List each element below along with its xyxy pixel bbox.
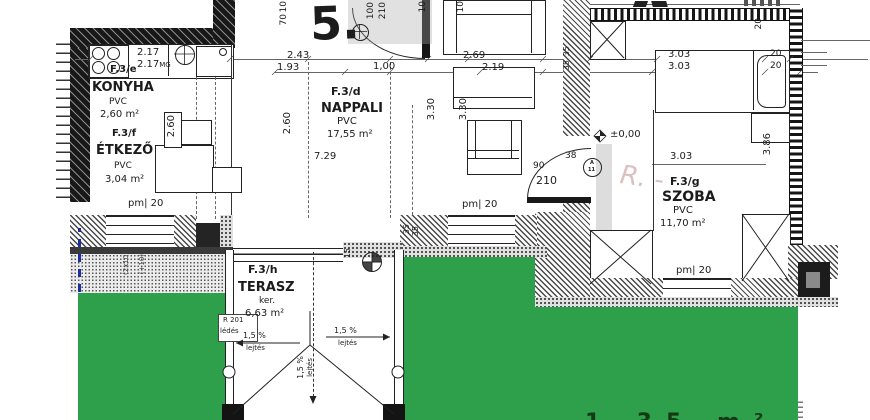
dim-20b: 20	[770, 50, 781, 59]
dim-35d: 35	[412, 226, 420, 236]
dim-35b: 35	[563, 60, 571, 70]
room-area-konyha: 2,60 m²	[100, 110, 139, 120]
dim-35a: 35	[563, 46, 571, 56]
dim-330b: 3.30	[459, 98, 469, 120]
slope-word-left: lejtés	[246, 345, 265, 352]
room-floor-szoba: PVC	[673, 206, 693, 216]
room-area-etkezo: 3,04 m²	[105, 175, 144, 185]
dim-217: 2.17	[137, 48, 159, 58]
dim-door-100: 100	[367, 2, 376, 19]
dim-243: 2.43	[287, 51, 309, 61]
dim-219: 2.19	[482, 63, 504, 73]
dim-10a: 10	[280, 1, 289, 12]
slope-word-center: lejtés	[307, 358, 314, 377]
dim-330a: 3.30	[427, 98, 437, 120]
plan-number: 5.	[309, 0, 360, 47]
dim-mg-suffix: MG	[159, 61, 170, 69]
room-area-terasz: 6,63 m²	[245, 309, 284, 319]
note-2x10: (2x10)	[123, 252, 130, 275]
floor-plan-canvas: A 11	[0, 0, 870, 420]
bottom-clipped-text: 1,35 m²	[585, 412, 778, 420]
room-area-nappali: 17,55 m²	[327, 130, 373, 140]
room-name-szoba: SZOBA	[662, 190, 716, 204]
note-r201b: lédés	[220, 328, 239, 335]
dim-193: 1.93	[277, 63, 299, 73]
room-name-konyha: KONYHA	[92, 81, 154, 94]
level-mark: ±0,00	[610, 130, 641, 140]
parapet-note-nappali: pm| 20	[462, 200, 497, 210]
room-name-terasz: TERASZ	[238, 281, 295, 294]
slope-word-right: lejtés	[338, 340, 357, 347]
dim-260a: 2.60	[167, 115, 177, 137]
dim-260b: 2.60	[283, 112, 293, 134]
door-dim-38: 38	[565, 152, 576, 161]
dim-door-210: 210	[379, 2, 388, 19]
dim-729: 7.29	[314, 152, 336, 162]
room-floor-etkezo: PVC	[114, 162, 132, 171]
parapet-note-etkezo: pm| 20	[128, 199, 163, 209]
room-id-etkezo: F.3/f	[112, 129, 136, 139]
dim-15: 15	[344, 248, 352, 258]
dim-269: 2.69	[463, 51, 485, 61]
watermark-initial: R. -	[618, 162, 665, 194]
room-id-terasz: F.3/h	[248, 264, 278, 275]
room-id-konyha: F.3/e	[110, 65, 137, 75]
door-dim-210: 210	[536, 175, 557, 186]
slope-pct-center: 1,5 %	[297, 356, 305, 379]
dim-70: 70	[280, 14, 289, 25]
dim-303a: 3.03	[668, 50, 690, 60]
note-r201: R 201	[223, 317, 243, 324]
slope-pct-left: 1,5 %	[243, 332, 266, 340]
dim-303b: 3.03	[668, 62, 690, 72]
dim-217b: 2.17MG	[137, 60, 171, 70]
room-id-szoba: F.3/g	[670, 176, 700, 187]
room-name-etkezo: ÉTKEZŐ	[96, 144, 153, 157]
dim-35c: 35	[403, 224, 411, 234]
parapet-note-szoba: pm| 20	[676, 266, 711, 276]
dim-10b: 10	[419, 1, 428, 12]
room-floor-nappali: PVC	[337, 117, 357, 127]
room-floor-terasz: ker.	[259, 297, 275, 306]
line-work-overlay	[0, 0, 870, 420]
door-dim-90: 90	[533, 162, 544, 171]
dim-20c: 20	[770, 62, 781, 71]
dim-217b-value: 2.17	[137, 59, 159, 70]
dim-10c: 10	[457, 1, 466, 12]
room-id-nappali: F.3/d	[331, 86, 361, 97]
dim-386: 3.86	[763, 133, 773, 155]
room-name-nappali: NAPPALI	[321, 102, 383, 115]
dim-20a: 20	[755, 18, 764, 29]
slope-pct-right: 1,5 %	[334, 327, 357, 335]
dim-303c: 3.03	[670, 152, 692, 162]
room-floor-konyha: PVC	[109, 98, 127, 107]
note-plus10: (+10)	[139, 254, 146, 274]
room-area-szoba: 11,70 m²	[660, 219, 706, 229]
dim-100: 1,00	[373, 62, 395, 72]
